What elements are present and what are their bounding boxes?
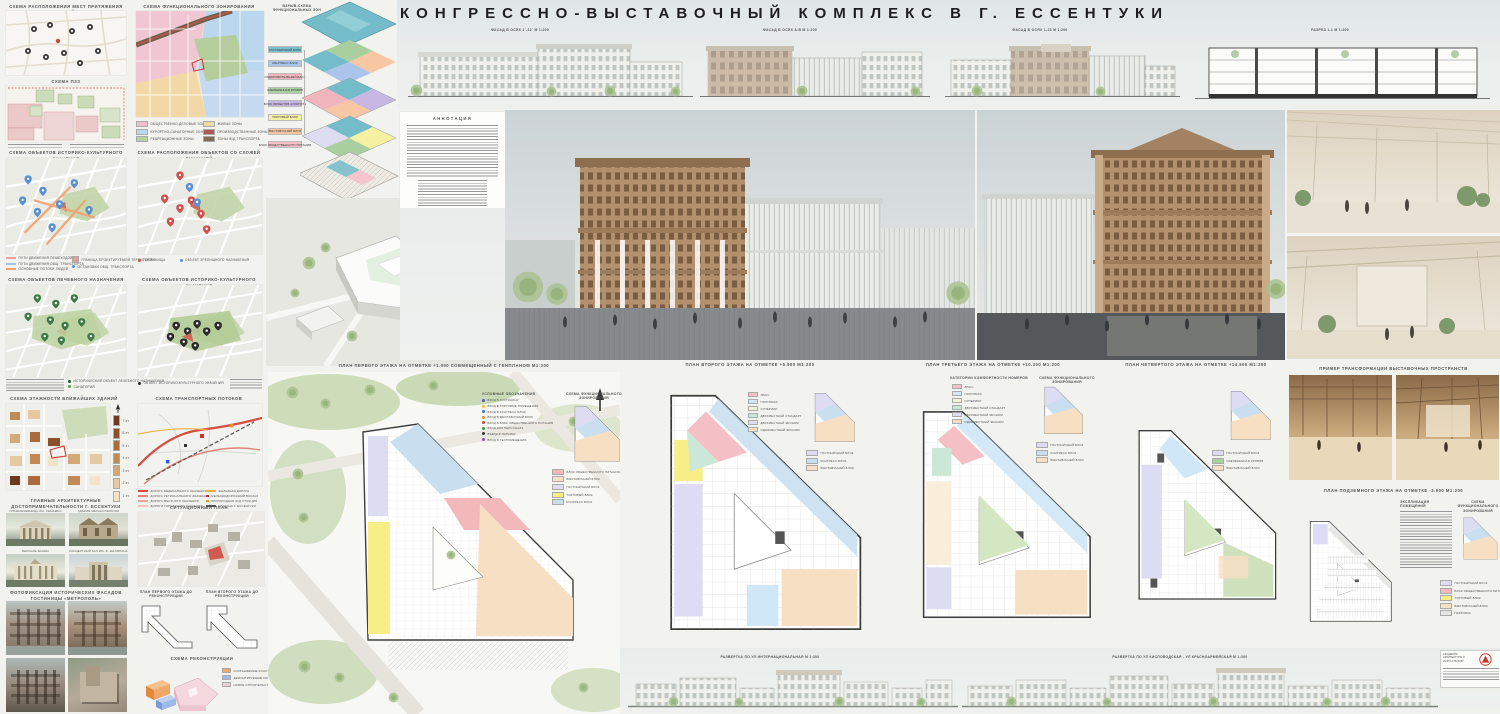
situation-map [138,512,264,586]
legend-label: ЖИЛЫЕ ЗОНЫ [218,122,243,126]
map-medical [6,285,126,377]
street-elevation1-title: РАЗВЕРТКА ПО УЛ ИНТЕРНАЦИОНАЛЬНАЯ М 1:30… [660,655,880,659]
underground-legend: ГОСТИНИЧНЫЙ БЛОК БЛОК ОБЩЕСТВЕННОГО ПИТА… [1440,580,1500,618]
legend-label: ПОЛУЛЮКС [761,400,779,404]
plan-before2-drawing [203,602,261,650]
plan2-keyplan [806,390,858,446]
legend-label: БЛОК ОБЩЕСТВЕННОГО ПИТАНИЯ [1455,589,1500,593]
legend-label: ВХОД В ТЕХПОМЕЩЕНИЯ [488,438,527,442]
metropol-photo [68,658,127,712]
plan2-title: ПЛАН ВТОРОГО ЭТАЖА НА ОТМЕТКЕ +5.900 М1:… [622,362,878,368]
zone-scheme-title: СХЕМА ФУНКЦИОНАЛЬНОГО ЗОНИРОВАНИЯ [1456,500,1500,513]
legend-label: ТОРГОВЫЙ БЛОК [1455,596,1481,600]
legend-label: КОНГРЕСС БЛОК [821,459,847,463]
zone-keyplan [1456,515,1500,563]
map-pzz-graphic [6,86,126,142]
legend-label: ТОРГОВЫЙ БЛОК [272,115,298,119]
zone-keyplan [565,403,623,466]
legend-label: ВХОД В КОНГРЕСС БЛОК [488,410,526,414]
plan-before1-drawing [138,602,196,650]
reconstruction-diagram [140,664,220,712]
map-history2-legend: ОБЪЕКТ ИСТОРИКО-КУЛЬТУРНОГО ЗНАЧЕНИЯ [138,379,262,389]
legend-label: СУПЕРИОР [761,407,778,411]
metropol-title: ФОТОФИКСАЦИЯ ИСТОРИЧЕСКИХ ФАСАДОВ ГОСТИН… [4,590,128,601]
underground-explication: ЭКСПЛИКАЦИЯ ПОМЕЩЕНИЙ [1400,500,1452,569]
street-elevation2-title: РАЗВЕРТКА ПО УЛ КИСЛОВОДСКАЯ - УЛ КРАСНО… [1060,655,1300,659]
legend-label: КОНГРЕСС БЛОК [272,61,297,65]
landmark-photo [6,513,65,546]
map-similar-legend: ГОСТИНИЦЫ ОБЪЕКТ ЗРЕЛИЩНОГО НАЗНАЧЕНИЯ [138,258,262,264]
landmarks-title: ГЛАВНЫЕ АРХИТЕКТУРНЫЕ ДОСТОПРИМЕЧАТЕЛЬНО… [4,498,128,509]
legend-chip [203,121,215,127]
board-title: КОНГРЕССНО-ВЫСТАВОЧНЫЙ КОМПЛЕКС В Г. ЕСС… [400,5,1160,22]
legend-label: ВХОД ДЛЯ ПЕРСОНАЛА [488,426,524,430]
legend-label: ВХОД В ТОРГОВЫЕ ПОМЕЩЕНИЯ [488,404,539,408]
plan4-keyplan [1222,388,1274,444]
legend-label: КОНГРЕСС БЛОК [1051,451,1077,455]
legend-label: ДОРОГА МЕСТНОГО ЗНАЧЕНИЯ [151,499,199,503]
reconstruction-legend: СОХРАНЯЕМЫЕ КОНСТРУКЦИИ ДЕМОНТИРУЕМЫЕ КО… [222,668,266,689]
plan4-title: ПЛАН ЧЕТВЕРТОГО ЭТАЖА НА ОТМЕТКЕ +14.500… [1105,362,1287,368]
legend-label: 6 эт. [123,431,130,435]
legend-label: ГОСТИНИЧНЫЙ БЛОК [821,451,854,455]
legend-label: ОЗЕЛЕНЕННАЯ КРОВЛЯ [267,88,303,92]
academy-logo-icon [1479,653,1492,666]
map-history2 [138,285,262,377]
legend-label: ВЫСТАВОЧНЫЙ БЛОК [1227,466,1260,470]
legend-label: ПРОИЗВОДСТВЕННЫЕ ЗОНЫ [218,130,268,134]
legend-chip [136,121,148,127]
plan-before1-title: ПЛАН ПЕРВОГО ЭТАЖА ДО РЕКОНСТРУКЦИИ [134,590,198,599]
facade-b-label: ФАСАД В ОСЯХ А-В М 1:200 [690,28,890,32]
legend-label: ДОРОГА РЕГИОНАЛЬНОГО ЗНАЧЕНИЯ [151,494,210,498]
plan3-rooms-legend: ЛЮКС ПОЛУЛЮКС СУПЕРИОР ДВУХМЕСТНЫЙ СТАНД… [952,384,1006,426]
metropol-photo [6,601,65,655]
medical-legend-finetext [6,379,64,391]
legend-label: БЛОК ОБЩЕСТВЕННОГО ПИТАНИЯ [567,470,620,474]
legend-label: ОСНОВНЫЕ ПОТОКИ ЛЮДЕЙ [19,267,69,271]
legend-label: ОСТАНОВКИ ОБЩ. ТРАНСПОРТА [78,265,134,269]
metropol-photo [68,601,127,655]
map-transport-title: СХЕМА ТРАНСПОРТНЫХ ПОТОКОВ [132,396,266,402]
facade-c-label: ФАСАД В ОСЯХ 1-23 М 1:200 [940,28,1140,32]
map-func-graphic [136,11,264,117]
annotation-body-finetext [407,125,498,177]
legend-label: ГОСТИНИЧНЫЙ БЛОК [269,48,301,52]
map-medical-title: СХЕМА ОБЪЕКТОВ ЛЕЧЕБНОГО НАЗНАЧЕНИЯ [4,277,128,283]
legend-label: 4 эт. [123,456,130,460]
metropol-photo [6,658,65,712]
legend-label: ОЗЕЛЕНЕННАЯ КРОВЛЯ [1227,459,1264,463]
north-arrow-icon [115,404,121,413]
map-history1-legend: ПУТИ ДВИЖЕНИЯ ПЕШЕХОДОВ ПУТИ ДВИЖЕНИЯ ОБ… [6,256,126,273]
legend-label: ГОСТИНИЦЫ [144,258,166,262]
legend-label: ВЫСТАВОЧНЫЙ БЛОК [821,466,854,470]
facade-c-drawing [945,36,1180,106]
annotation-title: АННОТАЦИЯ [400,116,505,122]
floors-legend: 7 эт. 6 эт. 5 эт. 4 эт. 3 эт. 2 эт. 1 эт… [113,404,131,503]
pzz-legend-finetext [8,144,62,149]
presentation-board: СХЕМА РАСПОЛОЖЕНИЯ МЕСТ ПРИТЯЖЕНИЯ ЛЮДЕЙ… [0,0,1500,714]
legend-chip [136,129,148,135]
legend-label: ПАРКОВКА [1455,611,1471,615]
landmark-photo [69,513,128,546]
legend-label: ВХОД В ГОСТИНИЦУ [488,398,519,402]
facade-a-drawing [408,36,693,106]
legend-label: ПУТИ ДВИЖЕНИЯ ПЕШЕХОДОВ [19,256,73,260]
legend-label: ТОРГОВЫЙ БЛОК [567,493,593,497]
section-label: РАЗРЕЗ 1-1 М 1:200 [1230,28,1430,32]
legend-label: ВХОД В БЛОК ОБЩЕСТВЕННОГО ПИТАНИЯ [488,421,554,425]
plan2-zones-legend: ГОСТИНИЧНЫЙ БЛОК КОНГРЕСС БЛОК ВЫСТАВОЧН… [806,450,870,473]
legend-label: ГОСТИНИЧНЫЙ БЛОК [1227,451,1260,455]
legend-label: ГОСТИНИЧНЫЙ БЛОК [1051,443,1084,447]
map-history2-graphic [138,285,262,377]
explication-title: ЭКСПЛИКАЦИЯ ПОМЕЩЕНИЙ [1400,500,1452,509]
underground-drawing [1290,498,1398,646]
legend-label: ОБЪЕКТ ИСТОРИКО-КУЛЬТУРНОГО ЗНАЧЕНИЯ [144,381,224,385]
stamp-org: АКАДЕМИЯ АРХИТЕКТУРЫ И ИСКУССТВ ЮФУ [1443,653,1477,663]
plan-before2-title: ПЛАН ВТОРОГО ЭТАЖА ДО РЕКОНСТРУКЦИИ [200,590,264,599]
legend-label: ДВУХМЕСТНЫЙ ЭКОНОМ [761,421,799,425]
legend-label: ГОСТИНИЧНЫЙ БЛОК [1455,581,1488,585]
plan4-zones-legend: ГОСТИНИЧНЫЙ БЛОК ОЗЕЛЕНЕННАЯ КРОВЛЯ ВЫСТ… [1212,450,1284,473]
map-floors-title: СХЕМА ЭТАЖНОСТИ БЛИЖАЙШИХ ЗДАНИЙ [4,396,124,402]
legend-label: ВЫСТАВОЧНЫЙ БЛОК [1455,604,1488,608]
underground-zone-scheme: СХЕМА ФУНКЦИОНАЛЬНОГО ЗОНИРОВАНИЯ [1456,500,1500,563]
map-func-legend: ОБЩЕСТВЕННО-ДЕЛОВЫЕ ЗОНЫ КУРОРТНО-САНАТО… [136,121,264,144]
exterior-render-main [505,110,975,360]
legend-label: САНАТОРИЙ [74,385,95,389]
reconstruction-title: СХЕМА РЕКОНСТРУКЦИИ [148,656,256,662]
map-medical-legend: ИСТОРИЧЕСКИЙ ОБЪЕКТ ЛЕЧЕБНОГО НАЗНАЧЕНИЯ… [6,379,126,391]
legend-label: ДВУХМЕСТНЫЙ СТАНДАРТ [965,406,1006,410]
legend-chip [203,129,215,135]
map-floors [6,404,110,490]
legend-label: ЛЮКС [965,385,974,389]
map-medical-graphic [6,285,126,377]
transform-title: ПРИМЕР ТРАНСФОРМАЦИИ ВЫСТАВОЧНЫХ ПРОСТРА… [1287,366,1500,372]
legend-label: 5 эт. [123,444,130,448]
map-attraction-graphic [6,11,126,75]
plan3-title: ПЛАН ТРЕТЬЕГО ЭТАЖА НА ОТМЕТКЕ +10.200 М… [882,362,1104,368]
legend-label: ПОЛУЛЮКС [965,392,983,396]
transform-render-2 [1396,375,1499,480]
map-history1 [6,158,126,254]
legend-label: ДОРОГА ФЕДЕРАЛЬНОГО ЗНАЧЕНИЯ [151,489,207,493]
legend-label: 2 эт. [123,481,130,485]
legend-label: ОДНОМЕСТНЫЙ ЭКОНОМ [761,428,800,432]
exploded-diagram [300,2,400,198]
interior-render-1 [1287,110,1500,233]
title-block-stamp: АКАДЕМИЯ АРХИТЕКТУРЫ И ИСКУССТВ ЮФУ [1440,650,1500,688]
legend-label: 3 эт. [123,469,130,473]
legend-label: ЖЕЛЕЗНОДОРОЖНЫЙ ВОКЗАЛ [211,494,258,498]
map-transport [138,404,262,486]
legend-label: ПРИГОРОДНАЯ Ж/Д СТАНЦИЯ [211,499,257,503]
street-elevation2-drawing [962,664,1438,712]
situation-graphic [138,512,264,586]
plan1-title: ПЛАН ПЕРВОГО ЭТАЖА НА ОТМЕТКЕ +1.000 СОВ… [268,363,620,369]
legend-label: 7 эт. [123,419,130,423]
rooms-legend-title: КАТЕГОРИИ КОМФОРТНОСТИ НОМЕРОВ [950,376,1028,380]
legend-label: ДВУХМЕСТНЫЙ СТАНДАРТ [761,414,802,418]
metropol-photos [6,601,128,712]
annotation-panel: АННОТАЦИЯ [400,112,505,208]
map-floors-graphic [6,404,110,490]
legend-label: ЖЕЛЕЗНАЯ ДОРОГА [219,489,250,493]
legend-label: ОДНОМЕСТНЫЙ ЭКОНОМ [965,420,1004,424]
landmark-photo [69,554,128,587]
interior-render-2 [1287,236,1500,359]
legend-label: ВЫСТАВОЧНЫЙ БЛОК [567,477,600,481]
legend-label: НОВОЕ СТРОИТЕЛЬСТВО [234,683,273,687]
underground-title: ПЛАН ПОДЗЕМНОГО ЭТАЖА НА ОТМЕТКЕ -3.900 … [1287,488,1500,494]
exterior-render-secondary [977,110,1285,360]
legend-label: ЛЮКС [761,393,770,397]
map-similar-graphic [138,158,262,254]
plan2-rooms-legend: ЛЮКС ПОЛУЛЮКС СУПЕРИОР ДВУХМЕСТНЫЙ СТАНД… [748,392,802,434]
stamp-finetext [1443,668,1499,680]
map-similar [138,158,262,254]
legend-label: ВЪЕЗД В ПАРКИНГ [488,432,517,436]
map-pzz-title: СХЕМА ПЗЗ [4,79,128,85]
section-drawing [1195,36,1490,106]
legend-label: ВХОД В ВЫСТАВОЧНЫЙ БЛОК [488,415,534,419]
legend-label: ВЫСТАВОЧНЫЙ БЛОК [1051,458,1084,462]
map-func-zoning [136,11,264,117]
legend-label: СУПЕРИОР [965,399,982,403]
legend-label: КУРОРТНО-САНАТОРНЫЕ ЗОНЫ [151,130,207,134]
legend-label: ДВУХМЕСТНЫЙ ЭКОНОМ [965,413,1003,417]
legend-label: РЕКРЕАЦИОННЫЕ ЗОНЫ [151,137,194,141]
transform-render-1 [1289,375,1392,480]
plan1-legend-title: УСЛОВНЫЕ ОБОЗНАЧЕНИЯ [482,392,548,396]
exploded-legend: ГОСТИНИЧНЫЙ БЛОК КОНГРЕСС БЛОК ОЗДОРОВИТ… [268,46,302,155]
legend-label: ЗОНЫ Ж/Д ТРАНСПОРТА [218,137,260,141]
pzz-legend-finetext [70,144,124,149]
legend-label: ОБЩЕСТВЕННО-ДЕЛОВЫЕ ЗОНЫ [151,122,208,126]
map-func-title: СХЕМА ФУНКЦИОНАЛЬНОГО ЗОНИРОВАНИЯ [132,4,266,10]
legend-chip [136,136,148,142]
legend-chip [203,136,215,142]
map-pzz [6,86,126,142]
facade-a-label: ФАСАД В ОСЯХ 1`-22` М 1:200 [420,28,620,32]
legend-label: ВЫСТАВОЧНЫЙ БЛОК [269,129,302,133]
legend-label: ГОСТИНИЧНЫЙ БЛОК [567,485,600,489]
landmarks-photos: ГРЯЗЕЛЕЧЕБНИЦА ИМ. СЕМАШКО ЗДАНИЕ МЕХАНО… [6,510,128,587]
situation-title: СИТУАЦИОННЫЙ ПЛАН [132,505,266,511]
map-history1-graphic [6,158,126,254]
legend-label: ОБЪЕКТ ЗРЕЛИЩНОГО НАЗНАЧЕНИЯ [185,258,249,262]
annotation-tep-finetext [418,180,487,206]
street-elevation1-drawing [628,664,958,712]
legend-label: КОНГРЕСС БЛОК [567,500,593,504]
banner-wash [400,208,505,360]
plan3-keyplan [1036,384,1086,438]
landmark-photo [6,554,65,587]
facade-b-drawing [700,36,930,106]
plan1-legend: УСЛОВНЫЕ ОБОЗНАЧЕНИЯ ВХОД В ГОСТИНИЦУ ВХ… [482,392,548,443]
explication-finetext [1400,511,1452,569]
plan3-zones-legend: ГОСТИНИЧНЫЙ БЛОК КОНГРЕСС БЛОК ВЫСТАВОЧН… [1036,442,1100,465]
map-transport-graphic [138,404,262,486]
history2-legend-finetext [230,379,262,389]
map-attraction [6,11,126,75]
